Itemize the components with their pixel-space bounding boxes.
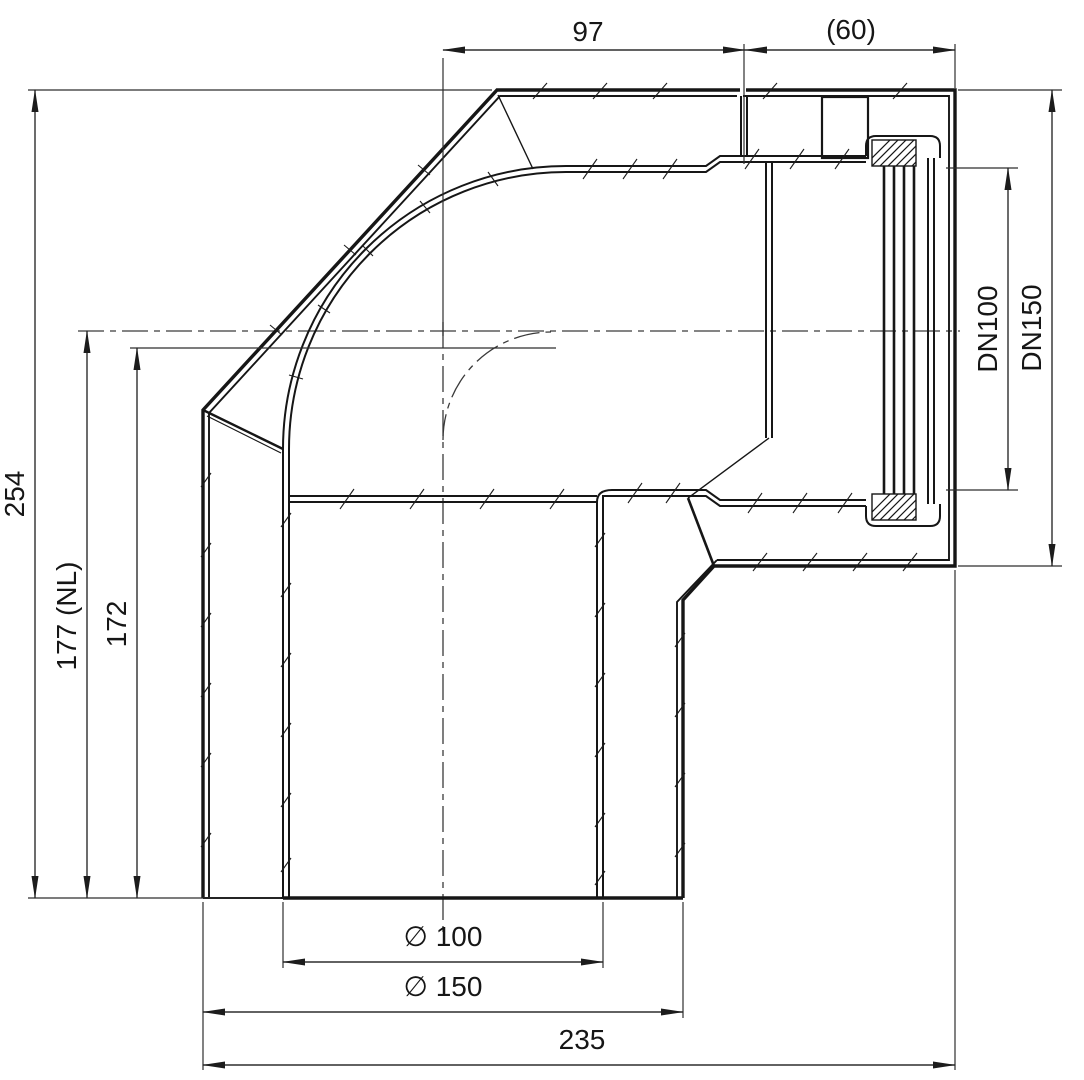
dim-label-172: 172 [101,601,132,648]
sleeve-overlap-joint [766,162,772,438]
dim-label-254: 254 [0,471,30,518]
gasket-hatch-bottom [862,492,956,522]
inner-pipe-bottom-bore [597,490,866,898]
drawing-canvas: 97 (60) 254 177 (NL) 172 DN100 DN150 ∅ 1… [0,0,1084,1080]
dim-label-97: 97 [572,16,603,47]
section-ticks [201,83,917,885]
miter-fold-top-corner [498,95,533,169]
miter-fold-top-left-inner [207,416,281,453]
technical-drawing: 97 (60) 254 177 (NL) 172 DN100 DN150 ∅ 1… [0,0,1084,1080]
casing-clip-slot [822,97,868,158]
inner-pipe-inner-contour [289,162,866,898]
inner-pipe-bottom-wall [603,496,866,898]
inner-pipe-outer-contour [283,156,866,898]
inner-flue-pipe [283,96,866,898]
dim-label-dn150: DN150 [1016,284,1047,371]
gasket-sealing-lips [884,166,914,494]
dim-label-177-nl: 177 (NL) [51,562,82,671]
extension-lines [28,44,1062,1070]
dim-label-dia150: ∅ 150 [404,971,483,1002]
dimension-lines [35,50,1052,1065]
dim-label-dn100: DN100 [972,285,1003,372]
dim-label-60: (60) [826,14,876,45]
dim-label-dia100: ∅ 100 [404,921,483,952]
miter-fold-top-left [203,410,283,449]
outer-casing [203,90,955,898]
gasket-hatch-top [862,138,956,168]
miter-fold-bottom-thick [688,498,714,566]
dim-label-235: 235 [559,1024,606,1055]
